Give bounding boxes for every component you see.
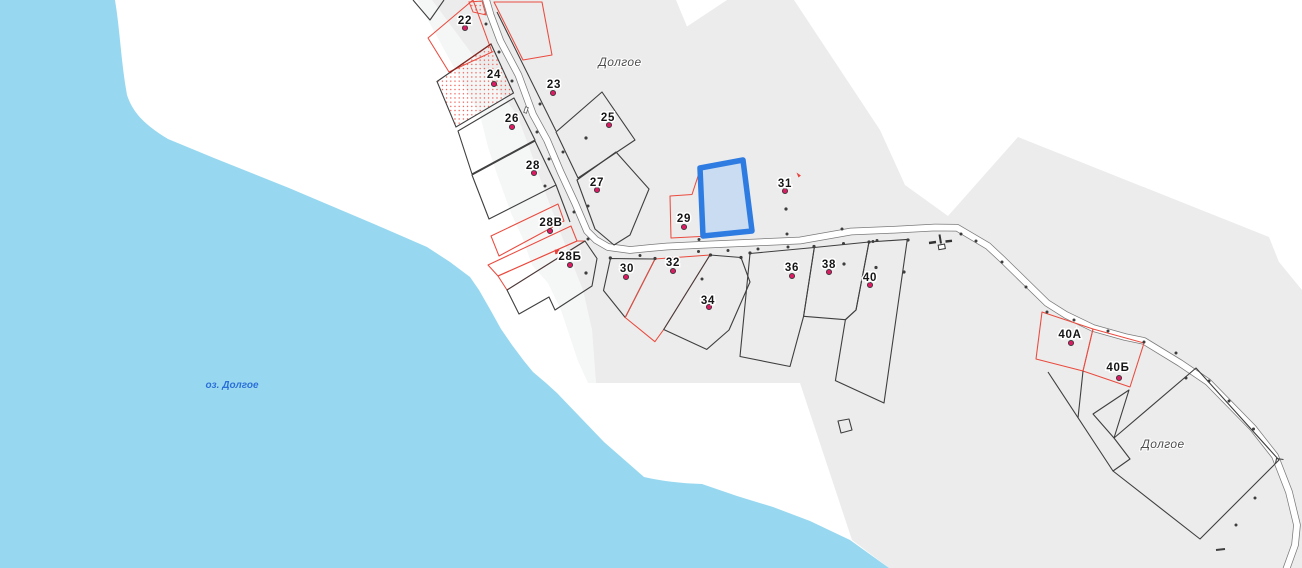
svg-text:23: 23 xyxy=(547,79,561,91)
svg-text:36: 36 xyxy=(785,262,799,274)
svg-text:27: 27 xyxy=(590,177,604,189)
svg-text:оз. Долгое: оз. Долгое xyxy=(205,380,259,391)
svg-text:24: 24 xyxy=(487,69,501,81)
svg-text:26: 26 xyxy=(505,113,519,125)
svg-text:30: 30 xyxy=(620,263,634,275)
svg-text:40Б: 40Б xyxy=(1106,362,1129,374)
svg-text:40А: 40А xyxy=(1058,329,1081,341)
svg-text:31: 31 xyxy=(778,178,792,190)
svg-text:29: 29 xyxy=(677,213,691,225)
svg-text:34: 34 xyxy=(701,295,715,307)
svg-text:28: 28 xyxy=(526,160,540,172)
svg-text:25: 25 xyxy=(601,112,615,124)
svg-text:22: 22 xyxy=(458,15,472,27)
svg-text:40: 40 xyxy=(863,272,877,284)
svg-text:Долгое: Долгое xyxy=(596,55,641,69)
svg-text:Долгое: Долгое xyxy=(1139,437,1184,451)
svg-text:28Б: 28Б xyxy=(558,251,581,263)
svg-text:32: 32 xyxy=(666,257,680,269)
svg-text:38: 38 xyxy=(822,259,836,271)
svg-text:28В: 28В xyxy=(539,217,562,229)
